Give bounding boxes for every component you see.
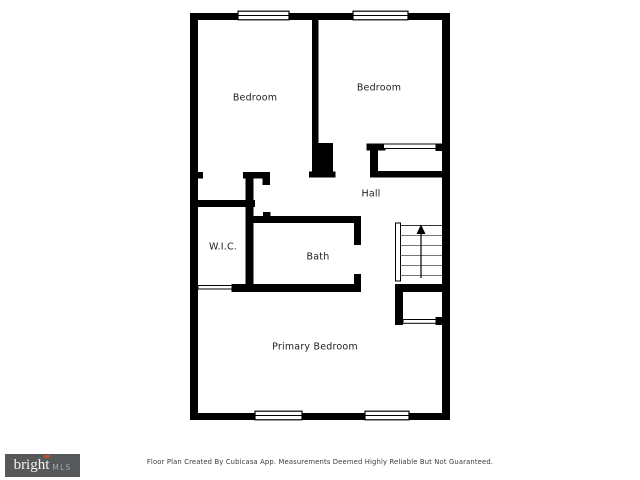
room-label-bath: Bath bbox=[307, 252, 330, 263]
closet-right-door-line bbox=[384, 144, 437, 149]
wall-primary-top-right bbox=[395, 284, 450, 292]
wall-top bbox=[190, 13, 450, 20]
staircase bbox=[396, 223, 443, 281]
wall-primary-top-left bbox=[232, 284, 362, 292]
wall-bedroom-divider bbox=[312, 19, 319, 144]
wall-right bbox=[442, 13, 450, 420]
stair-stringer bbox=[396, 223, 401, 281]
floor-plan-drawing bbox=[0, 0, 640, 480]
chimney-base bbox=[309, 172, 336, 178]
chimney-block bbox=[312, 143, 333, 173]
door-jamb-bedroom-left bbox=[263, 179, 271, 186]
room-label-hall: Hall bbox=[361, 189, 380, 200]
understair-closet-door-line bbox=[403, 320, 436, 324]
room-label-bedroom-left: Bedroom bbox=[233, 93, 277, 104]
understair-closet-end-stub bbox=[436, 317, 443, 325]
room-label-wic: W.I.C. bbox=[209, 242, 237, 253]
brightmls-logo: bright MLS bbox=[5, 454, 80, 477]
logo-suffix-text: MLS bbox=[52, 463, 71, 472]
logo-brand-text: bright bbox=[14, 458, 50, 473]
window-top-right bbox=[353, 11, 408, 20]
closet-left-stub bbox=[197, 172, 203, 179]
closet-right-end-stub bbox=[436, 144, 443, 152]
wall-left bbox=[190, 13, 198, 420]
floor-plan-page: Bedroom Bedroom Hall W.I.C. Bath Primary… bbox=[0, 0, 640, 480]
wic-entry-line bbox=[198, 286, 232, 290]
window-bottom-left bbox=[255, 411, 302, 420]
wall-bath-top bbox=[252, 216, 361, 223]
wall-wic-right bbox=[246, 172, 254, 292]
understair-closet-left-wall bbox=[395, 292, 403, 325]
interior-walls bbox=[197, 19, 450, 325]
room-label-primary-bedroom: Primary Bedroom bbox=[272, 342, 358, 353]
disclaimer-text: Floor Plan Created By Cubicasa App. Meas… bbox=[0, 458, 640, 466]
door-jamb-bath bbox=[263, 212, 271, 216]
wall-bottom bbox=[190, 413, 450, 420]
stairs-up-arrow-icon bbox=[417, 225, 426, 279]
room-label-bedroom-right: Bedroom bbox=[357, 83, 401, 94]
window-bottom-right bbox=[365, 411, 409, 420]
logo-accent-mark bbox=[44, 455, 50, 458]
closet-right-bottom-wall bbox=[370, 171, 442, 178]
window-top-left bbox=[238, 11, 289, 20]
wall-bath-right-upper bbox=[354, 216, 361, 245]
